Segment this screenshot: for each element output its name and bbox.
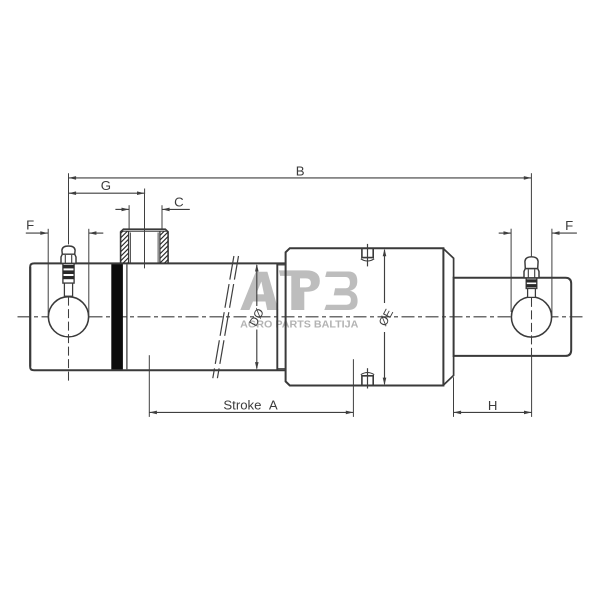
svg-text:F: F (26, 217, 34, 232)
svg-text:Stroke A: Stroke A (223, 398, 277, 413)
svg-text:B: B (296, 164, 305, 179)
svg-text:C: C (174, 195, 184, 210)
svg-text:G: G (101, 178, 111, 193)
svg-text:H: H (488, 398, 498, 413)
svg-text:F: F (565, 218, 573, 233)
